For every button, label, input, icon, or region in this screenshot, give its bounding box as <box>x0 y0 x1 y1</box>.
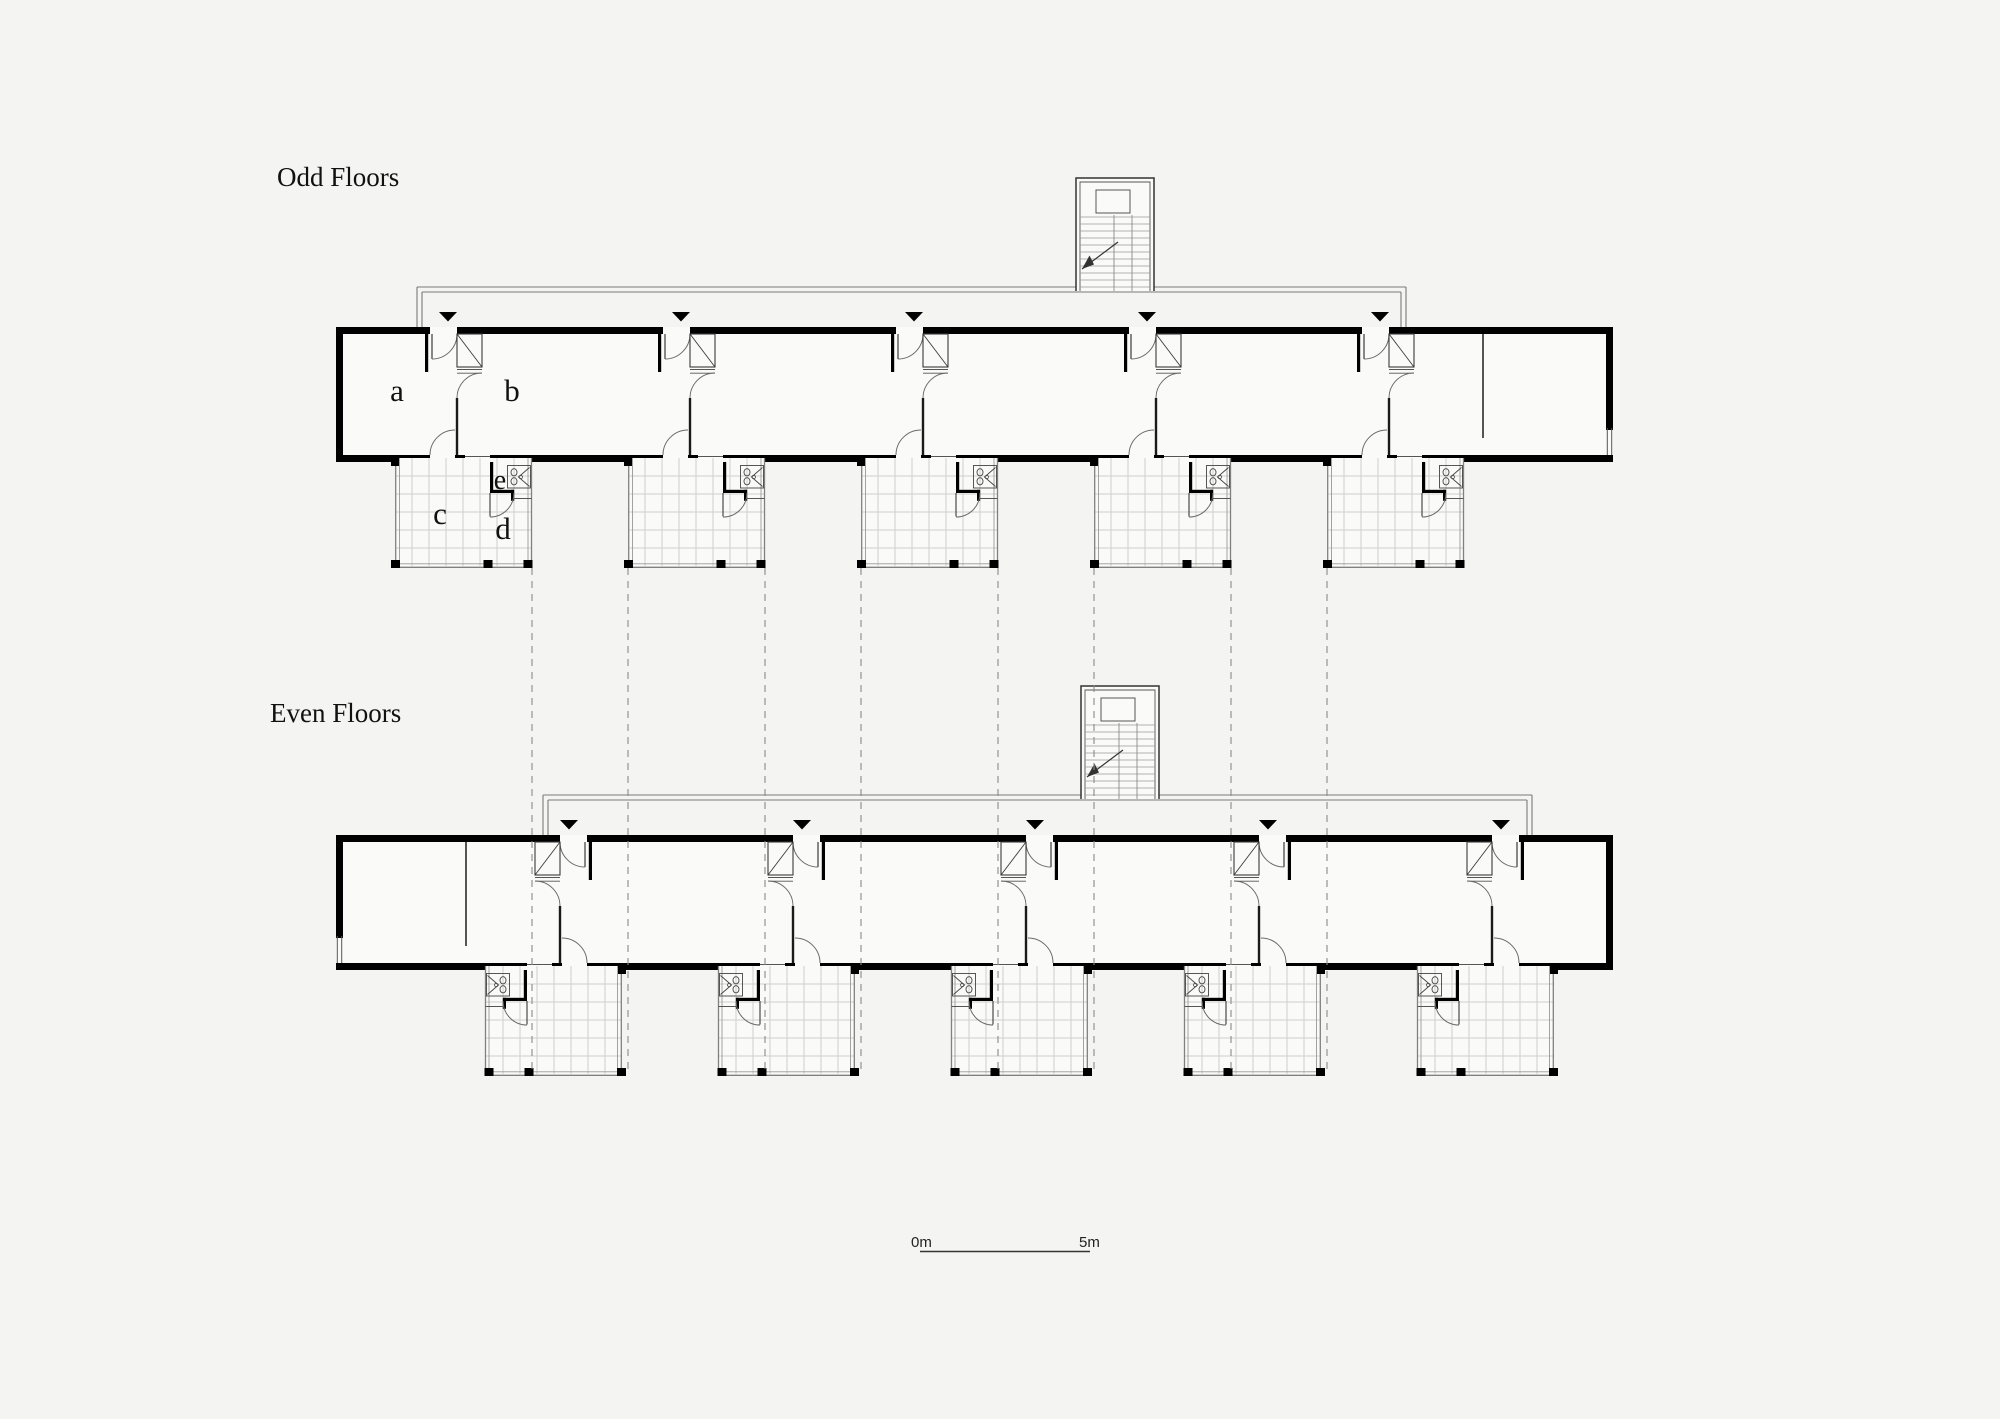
room-label-a: a <box>390 373 404 408</box>
scale-bar: 0m 5m <box>911 1234 1100 1252</box>
room-label-d: d <box>495 511 511 546</box>
even-floors-title: Even Floors <box>270 698 401 728</box>
floor-plan-sheet: Odd Floors a b c d e Even Floors 0m 5m <box>0 0 2000 1419</box>
odd-floor-plan: Odd Floors a b c d e <box>277 162 1613 568</box>
room-label-e: e <box>494 465 506 496</box>
odd-floors-title: Odd Floors <box>277 162 399 192</box>
floor-plan-drawing: Odd Floors a b c d e Even Floors 0m 5m <box>0 0 2000 1419</box>
scale-end-label: 5m <box>1079 1234 1100 1251</box>
even-floor-plan: Even Floors <box>270 686 1613 1076</box>
room-label-c: c <box>433 496 447 531</box>
room-label-b: b <box>504 373 520 408</box>
scale-start-label: 0m <box>911 1234 932 1251</box>
